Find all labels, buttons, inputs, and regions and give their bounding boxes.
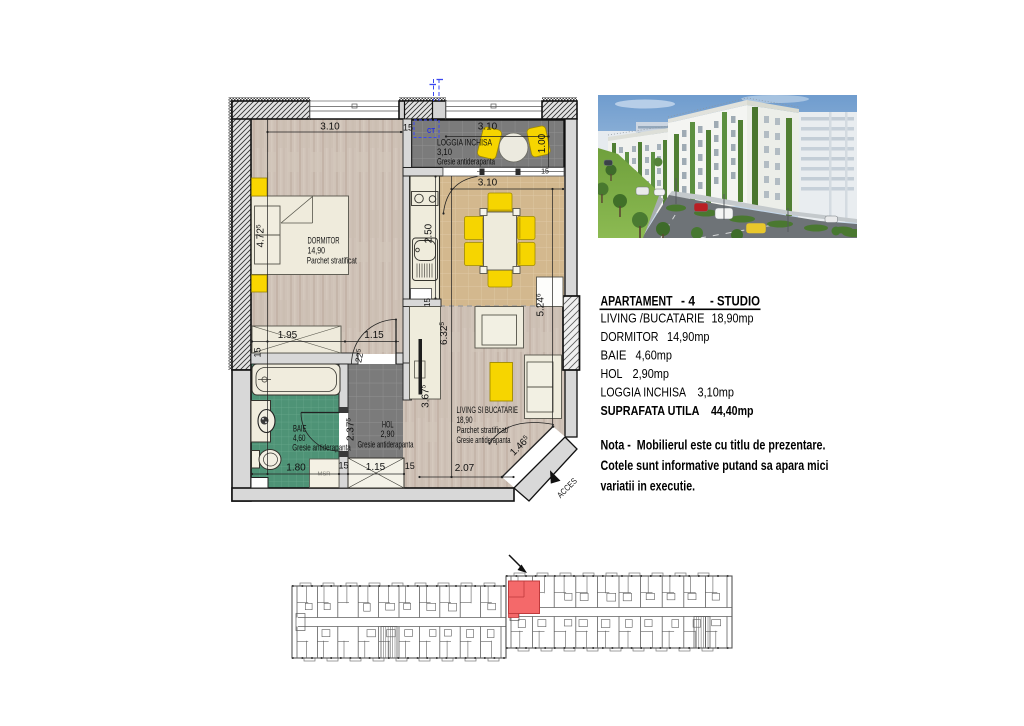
svg-text:APARTAMENT- 4- STUDIO: APARTAMENT- 4- STUDIO — [601, 294, 761, 309]
svg-text:2.50: 2.50 — [424, 223, 435, 243]
svg-text:1.95: 1.95 — [278, 330, 298, 341]
svg-text:1.15: 1.15 — [364, 330, 384, 341]
svg-text:1.80: 1.80 — [286, 463, 306, 474]
svg-text:DORMITOR14,90mp: DORMITOR14,90mp — [601, 329, 710, 344]
svg-text:CT: CT — [427, 126, 435, 135]
svg-text:LOGGIA INCHISA: LOGGIA INCHISA — [437, 138, 492, 148]
svg-text:3.10: 3.10 — [320, 122, 340, 133]
svg-text:MSR: MSR — [318, 472, 331, 478]
svg-text:Gresie antiderapanta: Gresie antiderapanta — [292, 443, 351, 454]
svg-text:Gresie antiderapanta: Gresie antiderapanta — [437, 157, 495, 167]
svg-text:3.10: 3.10 — [478, 178, 498, 189]
svg-text:Gresie antiderapanta: Gresie antiderapanta — [457, 435, 511, 446]
svg-text:Gresie antiderapanta: Gresie antiderapanta — [358, 440, 414, 451]
svg-text:SUPRAFATA UTILA44,40mp: SUPRAFATA UTILA44,40mp — [601, 403, 754, 418]
svg-text:HOL2,90mp: HOL2,90mp — [601, 366, 670, 381]
svg-text:15: 15 — [253, 347, 263, 357]
svg-text:Parchet stratificat: Parchet stratificat — [307, 256, 357, 267]
svg-text:variatii in executie.: variatii in executie. — [601, 479, 696, 494]
svg-text:LIVING /BUCATARIE18,90mp: LIVING /BUCATARIE18,90mp — [601, 311, 754, 326]
svg-text:15: 15 — [541, 169, 549, 176]
svg-text:3.10: 3.10 — [478, 122, 498, 133]
svg-text:Cotele sunt informative putand: Cotele sunt informative putand sa apara … — [601, 458, 829, 473]
svg-text:1.15: 1.15 — [366, 462, 386, 473]
svg-text:15: 15 — [423, 298, 432, 307]
svg-text:1.00: 1.00 — [537, 133, 548, 153]
svg-text:15: 15 — [338, 461, 348, 471]
svg-text:15: 15 — [405, 461, 415, 471]
svg-text:2,90: 2,90 — [381, 429, 395, 440]
svg-text:LOGGIA INCHISA3,10mp: LOGGIA INCHISA3,10mp — [601, 385, 735, 400]
svg-text:3,10: 3,10 — [437, 147, 452, 157]
svg-text:BAIE4,60mp: BAIE4,60mp — [601, 348, 673, 363]
svg-text:Nota - Mobilierul este cu tit: Nota - Mobilierul este cu titlu de preze… — [601, 438, 826, 453]
svg-text:2.07: 2.07 — [455, 463, 475, 474]
svg-text:15: 15 — [403, 123, 413, 133]
